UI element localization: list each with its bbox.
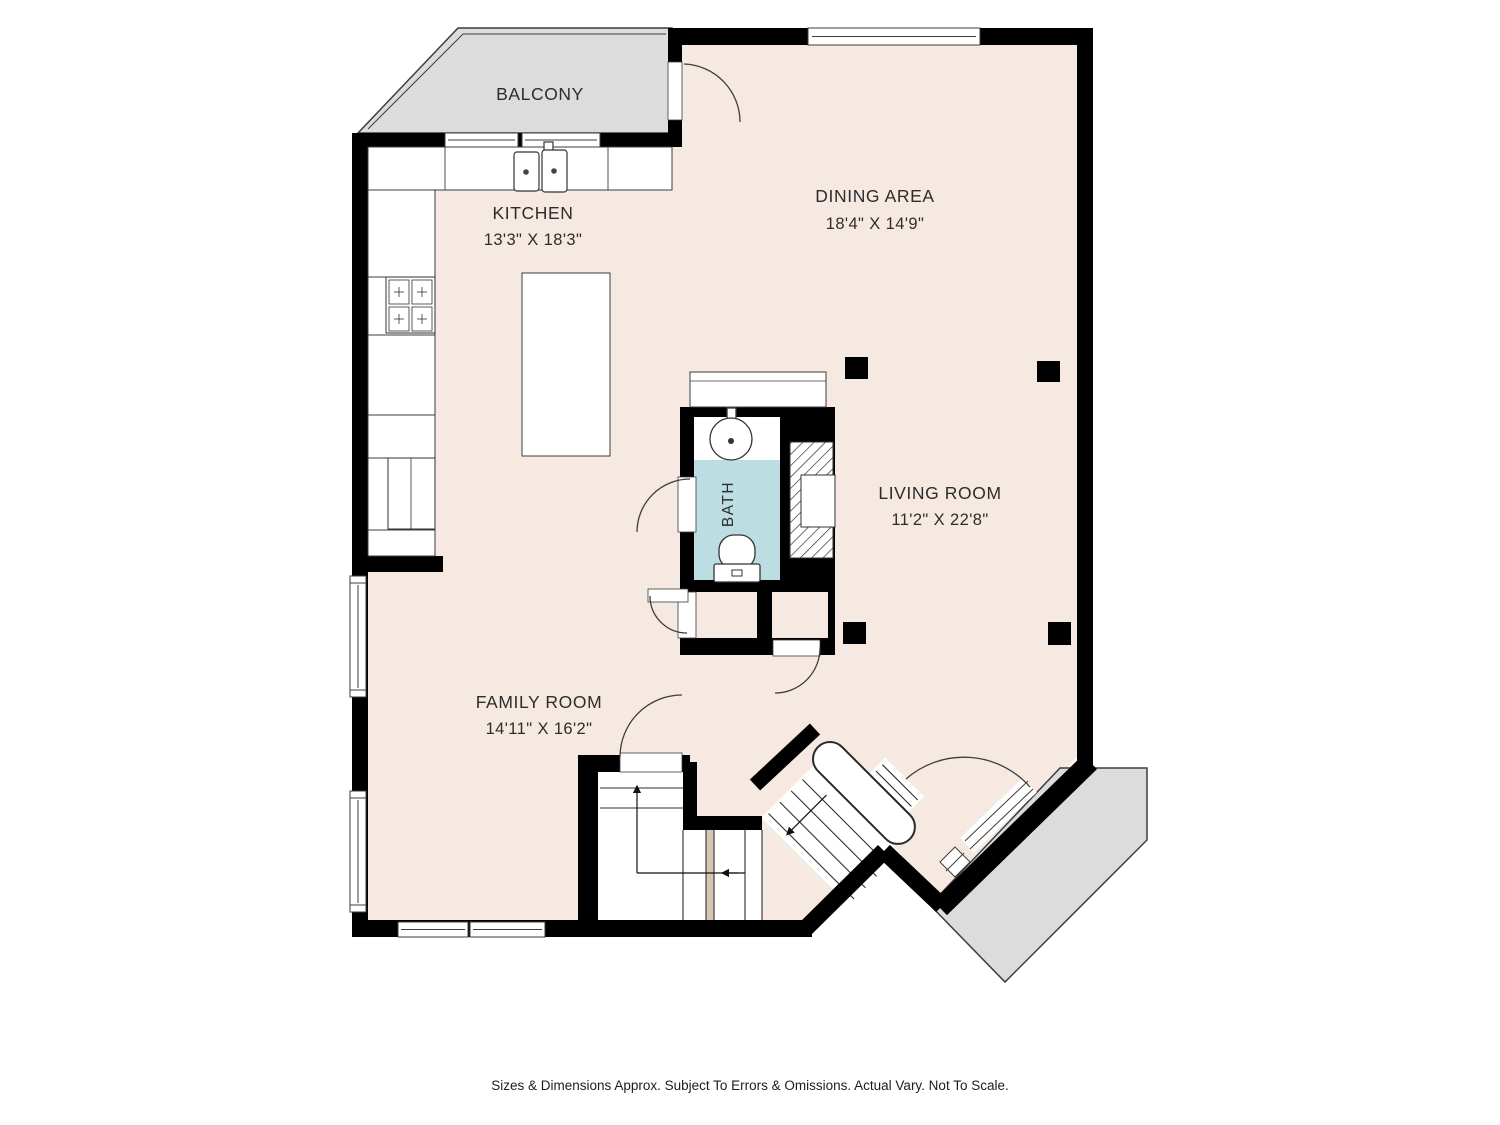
family-label: FAMILY ROOM [476,692,603,712]
footer-disclaimer: Sizes & Dimensions Approx. Subject To Er… [491,1078,1008,1093]
bath-label: BATH [720,481,737,527]
stair-rail-accent [706,830,714,920]
window-family-left-2 [350,791,366,912]
closet-right-door-gap [773,640,820,656]
stair-middle-area [683,830,762,922]
column-4 [1048,622,1071,645]
closet-right-floor [772,592,828,638]
window-family-bottom-1 [398,922,468,937]
stair-door-gap [620,753,682,772]
dining-cabinet [690,372,826,407]
closet-left-floor [694,592,757,638]
dining-dims: 18'4" X 14'9" [826,215,924,233]
window-kitchen-1 [445,133,518,147]
balcony-label: BALCONY [496,84,584,104]
window-dining-top [808,28,980,45]
bath-door-gap [678,477,696,532]
kitchen-dims: 13'3" X 18'3" [484,231,582,249]
window-family-bottom-2 [470,922,545,937]
toilet-icon [714,535,760,582]
balcony-area [358,28,672,133]
floor-plan-page: BALCONY KITCHEN 13'3" X 18'3" DINING ARE… [0,0,1500,1125]
balcony-door-gap [668,62,682,120]
kitchen-label: KITCHEN [492,203,573,223]
column-2 [1037,361,1060,382]
column-1 [845,357,868,379]
family-dims: 14'11" X 16'2" [486,720,593,738]
wall-stair-mid-horiz [683,816,762,830]
wall-right [1077,28,1093,768]
living-label: LIVING ROOM [878,483,1001,503]
column-3 [843,622,866,644]
dining-label: DINING AREA [815,186,934,206]
stair-upper-flight-area [598,771,683,922]
wall-stair-mid-vert [683,762,697,822]
wall-kitchen-stub [366,556,443,572]
floor-plan-svg: BALCONY KITCHEN 13'3" X 18'3" DINING ARE… [0,0,1500,1125]
window-kitchen-2 [522,133,600,147]
wall-stair-left [578,755,598,937]
refrigerator-icon [388,458,435,529]
stove-icon [386,277,435,333]
closet-left-door-leaf [648,589,688,602]
window-family-left-1 [350,576,366,697]
fireplace-firebox [801,475,835,527]
kitchen-island [522,273,610,456]
living-dims: 11'2" X 22'8" [891,511,988,529]
balcony-deck [358,28,672,133]
